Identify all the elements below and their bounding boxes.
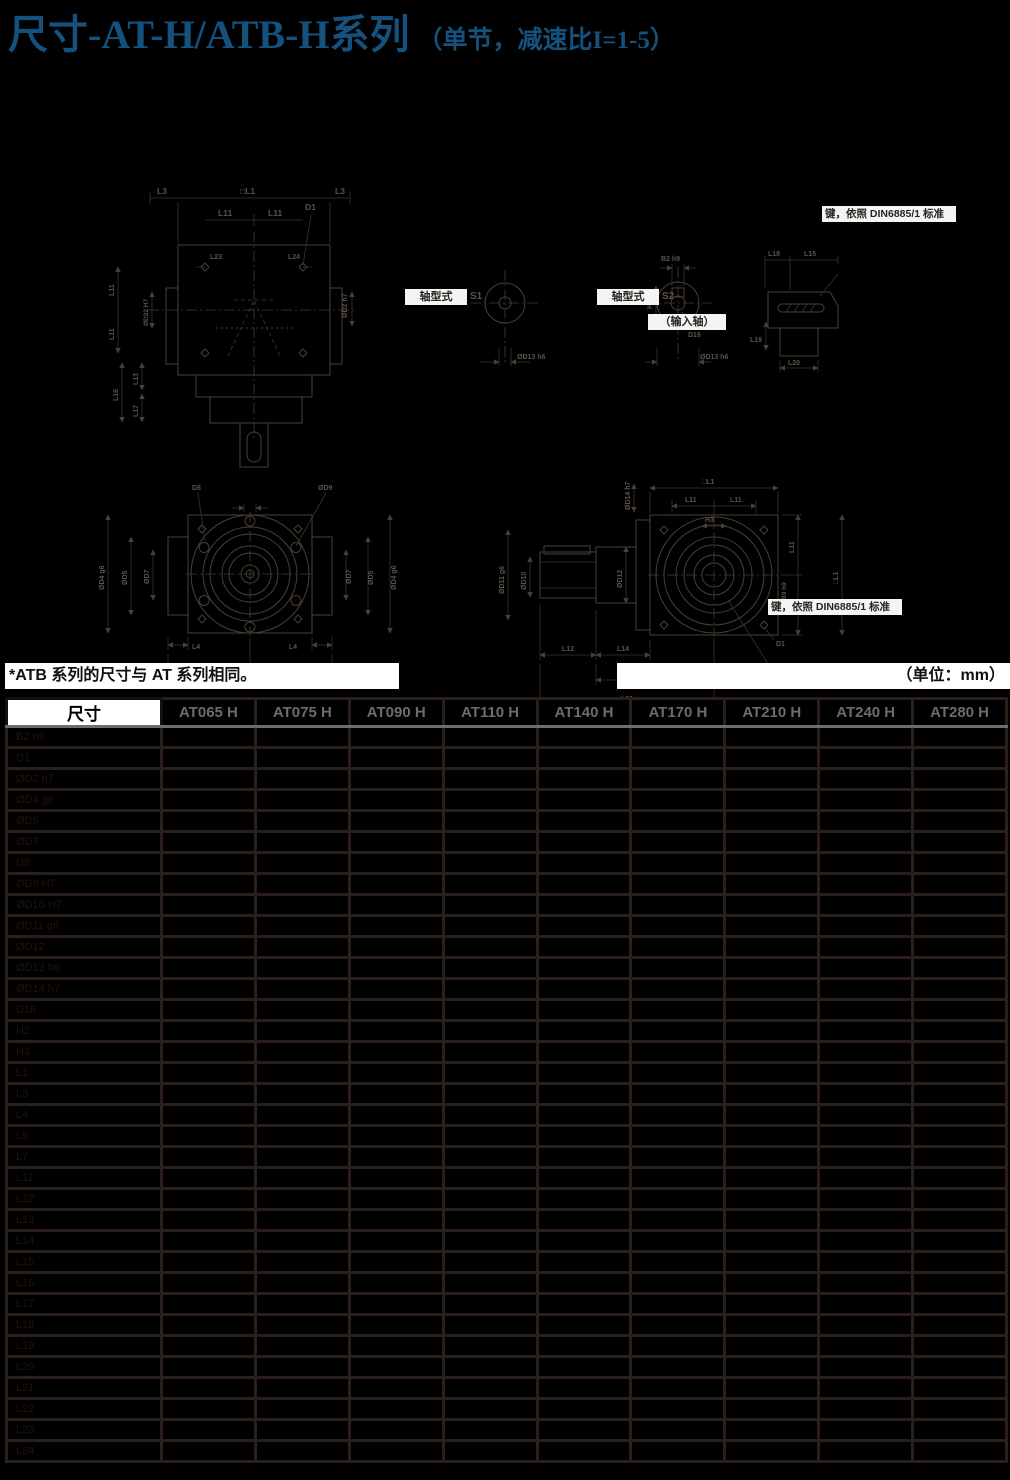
value-cell [819, 1315, 913, 1336]
value-cell [349, 1021, 443, 1042]
column-header: AT075 H [255, 699, 349, 727]
value-cell [819, 811, 913, 832]
value-cell [162, 874, 256, 895]
value-cell [819, 769, 913, 790]
value-cell [537, 1126, 631, 1147]
value-cell [162, 1084, 256, 1105]
value-cell [162, 1210, 256, 1231]
value-cell [349, 769, 443, 790]
column-header: AT110 H [443, 699, 537, 727]
row-label-cell: L16 [7, 1273, 162, 1294]
value-cell [819, 937, 913, 958]
value-cell [725, 1252, 819, 1273]
svg-text:L18: L18 [768, 251, 780, 258]
value-cell [162, 916, 256, 937]
table-row: ØD9 H7 [7, 874, 1007, 895]
row-label-cell: L20 [7, 1357, 162, 1378]
value-cell [631, 1252, 725, 1273]
svg-text:L3: L3 [157, 186, 167, 196]
value-cell [631, 1420, 725, 1441]
svg-text:ØD4 g6: ØD4 g6 [99, 565, 106, 590]
value-cell [162, 1042, 256, 1063]
value-cell [255, 1357, 349, 1378]
value-cell [443, 874, 537, 895]
value-cell [819, 1105, 913, 1126]
value-cell [162, 1168, 256, 1189]
row-label-cell: D16 [7, 1000, 162, 1021]
value-cell [349, 916, 443, 937]
value-cell [443, 1273, 537, 1294]
value-cell [162, 1063, 256, 1084]
svg-text:L11: L11 [685, 497, 697, 504]
value-cell [819, 1420, 913, 1441]
svg-text:ØD5: ØD5 [122, 571, 129, 586]
value-cell [913, 811, 1007, 832]
value-cell [537, 1273, 631, 1294]
row-label-cell: L15 [7, 1252, 162, 1273]
dimension-table: 尺寸 AT065 H AT075 H AT090 H AT110 H AT140… [5, 697, 1008, 1463]
value-cell [255, 1021, 349, 1042]
value-cell [537, 853, 631, 874]
unit-note: （单位：mm） [617, 663, 1010, 689]
value-cell [725, 1420, 819, 1441]
svg-text:L20: L20 [788, 360, 800, 367]
row-label-cell: ØD11 g6 [7, 916, 162, 937]
value-cell [255, 979, 349, 1000]
value-cell [443, 1105, 537, 1126]
column-header: AT090 H [349, 699, 443, 727]
value-cell [162, 748, 256, 769]
table-row: D8 [7, 853, 1007, 874]
row-label-cell: D8 [7, 853, 162, 874]
table-row: B2 h9 [7, 727, 1007, 748]
value-cell [349, 1336, 443, 1357]
table-row: L24 [7, 1441, 1007, 1462]
value-cell [631, 1378, 725, 1399]
value-cell [162, 1252, 256, 1273]
value-cell [349, 1147, 443, 1168]
value-cell [255, 1042, 349, 1063]
value-cell [631, 1231, 725, 1252]
table-header-row: 尺寸 AT065 H AT075 H AT090 H AT110 H AT140… [7, 699, 1007, 727]
value-cell [255, 1252, 349, 1273]
value-cell [443, 1147, 537, 1168]
svg-text:H3: H3 [705, 517, 714, 524]
svg-text:L13: L13 [133, 373, 140, 385]
value-cell [162, 937, 256, 958]
table-row: L3 [7, 1084, 1007, 1105]
value-cell [537, 1147, 631, 1168]
svg-text:D1: D1 [776, 641, 785, 648]
value-cell [819, 1063, 913, 1084]
value-cell [725, 1042, 819, 1063]
svg-text:ØD2 h7: ØD2 h7 [342, 293, 349, 318]
value-cell [443, 916, 537, 937]
value-cell [819, 1126, 913, 1147]
value-cell [349, 853, 443, 874]
value-cell [913, 1336, 1007, 1357]
value-cell [631, 1273, 725, 1294]
value-cell [443, 811, 537, 832]
value-cell [349, 832, 443, 853]
value-cell [255, 1210, 349, 1231]
value-cell [913, 1399, 1007, 1420]
value-cell [631, 1042, 725, 1063]
column-header: AT210 H [725, 699, 819, 727]
value-cell [631, 1210, 725, 1231]
table-row: ØD4 g6 [7, 790, 1007, 811]
value-cell [162, 1231, 256, 1252]
svg-text:ØD9: ØD9 [318, 485, 333, 492]
table-row: L4 [7, 1105, 1007, 1126]
value-cell [725, 1189, 819, 1210]
row-label-cell: L3 [7, 1084, 162, 1105]
value-cell [819, 1000, 913, 1021]
svg-text:L11: L11 [730, 497, 742, 504]
value-cell [443, 790, 537, 811]
value-cell [443, 832, 537, 853]
value-cell [819, 874, 913, 895]
svg-text:L23: L23 [210, 254, 222, 261]
value-cell [349, 958, 443, 979]
value-cell [255, 937, 349, 958]
table-row: ØD14 h7 [7, 979, 1007, 1000]
value-cell [349, 1420, 443, 1441]
svg-text:L16: L16 [113, 389, 120, 401]
value-cell [725, 1273, 819, 1294]
value-cell [443, 1168, 537, 1189]
value-cell [631, 1000, 725, 1021]
value-cell [162, 1336, 256, 1357]
value-cell [537, 727, 631, 748]
value-cell [913, 1315, 1007, 1336]
value-cell [913, 790, 1007, 811]
value-cell [443, 1084, 537, 1105]
value-cell [537, 1000, 631, 1021]
page-title-sub: （单节，减速比I=1-5） [418, 27, 675, 54]
value-cell [913, 1084, 1007, 1105]
value-cell [349, 1000, 443, 1021]
value-cell [819, 1147, 913, 1168]
value-cell [631, 958, 725, 979]
value-cell [349, 1042, 443, 1063]
value-cell [349, 874, 443, 895]
table-row: L7 [7, 1147, 1007, 1168]
value-cell [913, 1378, 1007, 1399]
svg-text:D16: D16 [688, 332, 701, 339]
value-cell [725, 790, 819, 811]
value-cell [537, 790, 631, 811]
row-label-cell: L24 [7, 1441, 162, 1462]
value-cell [443, 1231, 537, 1252]
value-cell [537, 1357, 631, 1378]
value-cell [537, 1252, 631, 1273]
row-label-cell: ØD13 h6 [7, 958, 162, 979]
value-cell [162, 853, 256, 874]
value-cell [819, 853, 913, 874]
svg-text:ØD10: ØD10 [521, 572, 528, 590]
value-cell [255, 1273, 349, 1294]
value-cell [913, 769, 1007, 790]
value-cell [443, 1126, 537, 1147]
svg-text:ØD14 h7: ØD14 h7 [625, 481, 632, 510]
value-cell [725, 1021, 819, 1042]
value-cell [631, 1357, 725, 1378]
value-cell [537, 1168, 631, 1189]
value-cell [725, 727, 819, 748]
value-cell [255, 1000, 349, 1021]
drawing-side-view-top: L3 □L1 L3 L11 L11 D1 L23 L24 ØD2 h7 L11 … [109, 186, 356, 467]
table-row: L12 [7, 1189, 1007, 1210]
value-cell [443, 1042, 537, 1063]
value-cell [255, 1399, 349, 1420]
value-cell [725, 979, 819, 1000]
value-cell [725, 1000, 819, 1021]
value-cell [819, 790, 913, 811]
value-cell [162, 811, 256, 832]
row-label-cell: L12 [7, 1189, 162, 1210]
input-shaft-caption: （输入轴） [648, 314, 726, 330]
value-cell [537, 1210, 631, 1231]
value-cell [537, 832, 631, 853]
value-cell [725, 1441, 819, 1462]
svg-text:L19: L19 [750, 337, 762, 344]
value-cell [349, 1084, 443, 1105]
row-label-cell: ØD2 h7 [7, 769, 162, 790]
value-cell [255, 1231, 349, 1252]
table-row: L23 [7, 1420, 1007, 1441]
value-cell [349, 811, 443, 832]
column-header: AT140 H [537, 699, 631, 727]
value-cell [631, 748, 725, 769]
value-cell [819, 895, 913, 916]
value-cell [631, 895, 725, 916]
value-cell [819, 916, 913, 937]
svg-text:L12: L12 [562, 646, 574, 653]
value-cell [537, 1441, 631, 1462]
value-cell [255, 811, 349, 832]
row-label-cell: L18 [7, 1315, 162, 1336]
catalog-page: 尺寸-AT-H/ATB-H系列（单节，减速比I=1-5） L3 □L1 L3 L… [0, 0, 1010, 1480]
value-cell [162, 1420, 256, 1441]
value-cell [162, 1000, 256, 1021]
value-cell [631, 1063, 725, 1084]
value-cell [255, 1378, 349, 1399]
value-cell [349, 895, 443, 916]
table-row: L21 [7, 1378, 1007, 1399]
drawing-shaft-type-s2: B2 h9 H2 D16 ØD13 h6 [645, 256, 729, 366]
value-cell [819, 1252, 913, 1273]
value-cell [631, 1294, 725, 1315]
svg-text:ØD4 g6: ØD4 g6 [391, 565, 398, 590]
value-cell [537, 874, 631, 895]
value-cell [913, 1441, 1007, 1462]
value-cell [255, 769, 349, 790]
svg-text:L11: L11 [109, 328, 116, 340]
value-cell [819, 1357, 913, 1378]
value-cell [537, 1189, 631, 1210]
svg-text:L4: L4 [289, 644, 297, 651]
value-cell [349, 1315, 443, 1336]
value-cell [725, 937, 819, 958]
value-cell [819, 727, 913, 748]
value-cell [913, 895, 1007, 916]
value-cell [443, 1336, 537, 1357]
value-cell [349, 1273, 443, 1294]
value-cell [255, 1084, 349, 1105]
value-cell [725, 1378, 819, 1399]
value-cell [913, 832, 1007, 853]
value-cell [631, 1399, 725, 1420]
svg-text:L11: L11 [109, 284, 116, 296]
svg-text:L14: L14 [617, 646, 629, 653]
value-cell [162, 1189, 256, 1210]
table-row: L1 [7, 1063, 1007, 1084]
value-cell [162, 1273, 256, 1294]
value-cell [443, 1315, 537, 1336]
technical-drawings: L3 □L1 L3 L11 L11 D1 L23 L24 ØD2 h7 L11 … [0, 60, 1010, 720]
value-cell [819, 1231, 913, 1252]
value-cell [819, 1336, 913, 1357]
value-cell [913, 748, 1007, 769]
value-cell [819, 1168, 913, 1189]
value-cell [819, 1441, 913, 1462]
value-cell [349, 1105, 443, 1126]
value-cell [443, 1441, 537, 1462]
row-label-cell: L21 [7, 1378, 162, 1399]
value-cell [349, 1126, 443, 1147]
value-cell [913, 853, 1007, 874]
value-cell [913, 1168, 1007, 1189]
value-cell [913, 1231, 1007, 1252]
table-row: ØD11 g6 [7, 916, 1007, 937]
row-label-cell: L22 [7, 1399, 162, 1420]
value-cell [537, 1063, 631, 1084]
shaft-type-s1-variant: S1 [470, 291, 482, 302]
value-cell [255, 1315, 349, 1336]
value-cell [631, 1105, 725, 1126]
value-cell [913, 958, 1007, 979]
svg-text:ØD7: ØD7 [346, 570, 353, 585]
page-title: 尺寸-AT-H/ATB-H系列（单节，减速比I=1-5） [8, 2, 675, 60]
value-cell [819, 1378, 913, 1399]
table-row: ØD10 H7 [7, 895, 1007, 916]
value-cell [162, 1441, 256, 1462]
value-cell [537, 937, 631, 958]
column-header: AT170 H [631, 699, 725, 727]
value-cell [913, 1252, 1007, 1273]
value-cell [725, 958, 819, 979]
value-cell [913, 937, 1007, 958]
row-label-cell: L1 [7, 1063, 162, 1084]
value-cell [913, 1294, 1007, 1315]
value-cell [537, 1105, 631, 1126]
value-cell [913, 1042, 1007, 1063]
value-cell [349, 790, 443, 811]
key-standard-note-top: 键，依照 DIN6885/1 标准 [822, 206, 956, 222]
value-cell [537, 769, 631, 790]
value-cell [443, 1000, 537, 1021]
value-cell [631, 916, 725, 937]
column-header: AT240 H [819, 699, 913, 727]
value-cell [537, 958, 631, 979]
table-row: L18 [7, 1315, 1007, 1336]
value-cell [725, 895, 819, 916]
row-label-cell: H2 [7, 1021, 162, 1042]
value-cell [443, 979, 537, 1000]
value-cell [537, 1231, 631, 1252]
svg-text:ØD5: ØD5 [368, 571, 375, 586]
value-cell [913, 979, 1007, 1000]
value-cell [162, 958, 256, 979]
value-cell [162, 1021, 256, 1042]
value-cell [255, 1063, 349, 1084]
value-cell [631, 937, 725, 958]
value-cell [443, 748, 537, 769]
svg-text:D1: D1 [305, 202, 316, 212]
value-cell [913, 1147, 1007, 1168]
value-cell [537, 1042, 631, 1063]
value-cell [255, 1168, 349, 1189]
value-cell [819, 832, 913, 853]
svg-text:L11: L11 [789, 541, 796, 553]
value-cell [537, 916, 631, 937]
svg-text:L15: L15 [804, 251, 816, 258]
value-cell [913, 874, 1007, 895]
value-cell [537, 811, 631, 832]
value-cell [913, 1000, 1007, 1021]
shaft-type-s2-variant: S2 [662, 291, 674, 302]
value-cell [255, 832, 349, 853]
value-cell [725, 1315, 819, 1336]
value-cell [349, 1168, 443, 1189]
value-cell [631, 1441, 725, 1462]
value-cell [349, 748, 443, 769]
atb-note: *ATB 系列的尺寸与 AT 系列相同。 [5, 663, 399, 689]
row-label-cell: ØD7 [7, 832, 162, 853]
value-cell [725, 1399, 819, 1420]
row-label-cell: L19 [7, 1336, 162, 1357]
svg-text:L4: L4 [192, 644, 200, 651]
value-cell [349, 727, 443, 748]
value-cell [255, 874, 349, 895]
value-cell [537, 748, 631, 769]
row-label-cell: ØD10 H7 [7, 895, 162, 916]
value-cell [349, 1378, 443, 1399]
value-cell [162, 1378, 256, 1399]
value-cell [255, 790, 349, 811]
row-label-cell: ØD5 [7, 811, 162, 832]
table-row: ØD7 [7, 832, 1007, 853]
value-cell [443, 958, 537, 979]
key-standard-note-bottom: 键，依照 DIN6885/1 标准 [768, 599, 902, 615]
value-cell [819, 1399, 913, 1420]
page-title-main: 尺寸-AT-H/ATB-H系列 [8, 12, 410, 57]
value-cell [631, 1168, 725, 1189]
value-cell [913, 1273, 1007, 1294]
value-cell [443, 1420, 537, 1441]
svg-text:□L1: □L1 [833, 571, 840, 584]
value-cell [255, 958, 349, 979]
value-cell [631, 1021, 725, 1042]
row-label-cell: ØD12 [7, 937, 162, 958]
table-row: ØD2 h7 [7, 769, 1007, 790]
table-row: L5 [7, 1126, 1007, 1147]
value-cell [913, 1210, 1007, 1231]
value-cell [349, 1357, 443, 1378]
value-cell [913, 1357, 1007, 1378]
value-cell [443, 1063, 537, 1084]
